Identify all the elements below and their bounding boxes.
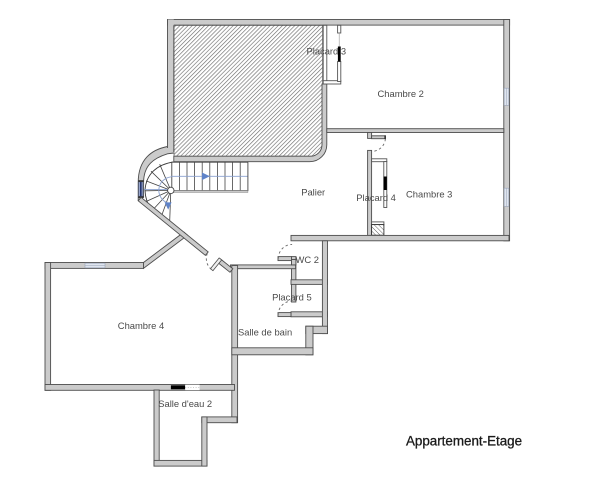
svg-text:Placard 5: Placard 5 xyxy=(272,292,312,303)
svg-text:Chambre 2: Chambre 2 xyxy=(378,88,424,99)
svg-text:WC 2: WC 2 xyxy=(295,254,318,265)
svg-text:Placard 3: Placard 3 xyxy=(306,45,346,56)
svg-text:Salle de bain: Salle de bain xyxy=(238,326,292,337)
svg-text:Appartement-Etage: Appartement-Etage xyxy=(406,434,522,449)
svg-text:Placard 4: Placard 4 xyxy=(356,192,396,203)
svg-text:Salle d'eau 2: Salle d'eau 2 xyxy=(158,398,212,409)
svg-text:Chambre 3: Chambre 3 xyxy=(406,188,452,199)
svg-text:Chambre 4: Chambre 4 xyxy=(118,320,164,331)
svg-text:Palier: Palier xyxy=(301,186,325,197)
